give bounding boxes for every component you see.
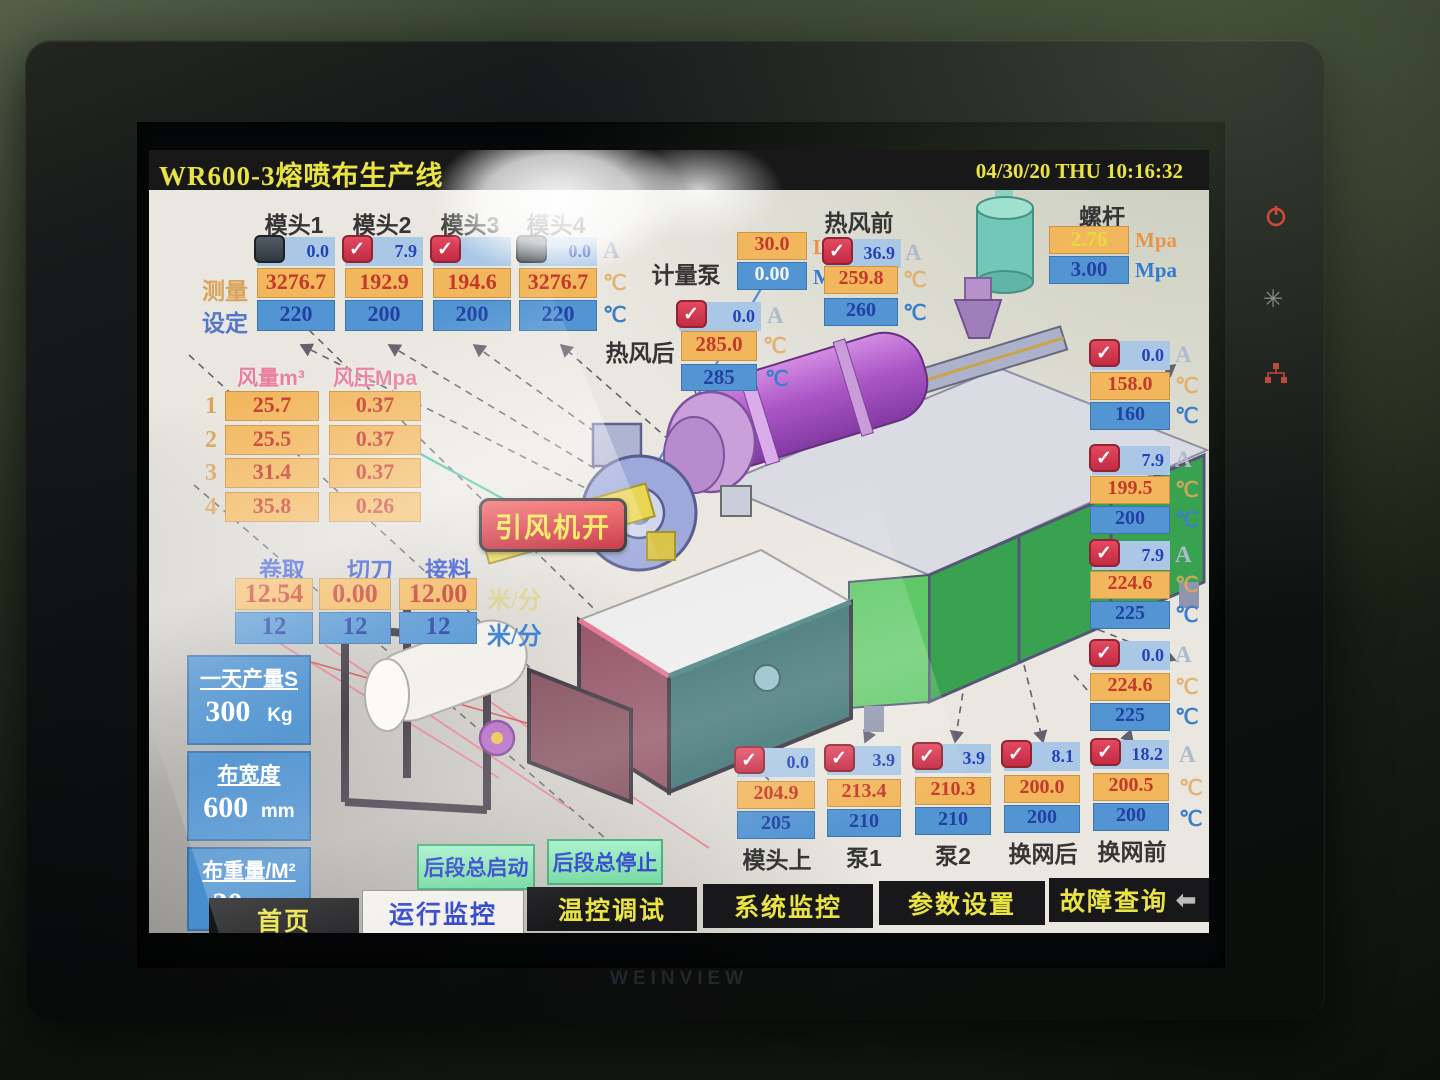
zone2-amp: 7.9 bbox=[1142, 450, 1165, 471]
hmi-content: WR600-3熔喷布生产线 04/30/20 THU 10:16:32 模头1 … bbox=[149, 150, 1209, 933]
zone1-unit-set: ℃ bbox=[1175, 404, 1199, 429]
zone4-unit-meas: ℃ bbox=[1175, 675, 1199, 700]
hot-air-front-amp-strip: 36.9 bbox=[825, 239, 901, 268]
diehead4-measured: 3276.7 bbox=[519, 268, 597, 298]
photo-background: ✳ WEINVIEW bbox=[0, 0, 1440, 1080]
hot-air-rear-unit-meas: ℃ bbox=[763, 334, 787, 359]
screen-changer-front-checkbox[interactable] bbox=[1090, 738, 1121, 766]
pump-pressure-value: 0.00 bbox=[737, 262, 807, 290]
daily-output-title: 一天产量S bbox=[189, 663, 309, 693]
diehead2-checkbox[interactable] bbox=[342, 235, 373, 263]
diehead2-amp-strip: 7.9 bbox=[345, 237, 423, 266]
pump1-measured: 213.4 bbox=[827, 779, 901, 807]
rear-start-button[interactable]: 后段总启动 bbox=[417, 844, 535, 890]
zone2-setpoint[interactable]: 200 bbox=[1090, 506, 1170, 534]
screen-changer-rear-amp-strip: 8.1 bbox=[1004, 742, 1080, 771]
zone4-unit-amp: A bbox=[1175, 642, 1192, 668]
hot-air-front-setpoint[interactable]: 260 bbox=[824, 298, 898, 326]
zone3-checkbox[interactable] bbox=[1089, 539, 1120, 567]
zone2-unit-amp: A bbox=[1175, 447, 1192, 473]
screen-changer-rear-checkbox[interactable] bbox=[1001, 740, 1032, 768]
hot-air-rear-setpoint[interactable]: 285 bbox=[681, 364, 757, 391]
network-icon bbox=[1263, 362, 1289, 391]
daily-output-value: 300 bbox=[205, 695, 250, 729]
diehead3-setpoint[interactable]: 200 bbox=[433, 300, 511, 331]
diehead-top-measured: 204.9 bbox=[737, 781, 815, 809]
screen-changer-front-amp: 18.2 bbox=[1132, 744, 1164, 765]
hot-air-front-checkbox[interactable] bbox=[822, 237, 853, 265]
fan-table-col-volume: 风量m³ bbox=[223, 362, 319, 392]
zone4-setpoint[interactable]: 225 bbox=[1090, 703, 1170, 731]
hot-air-front-amp: 36.9 bbox=[864, 243, 896, 264]
pump1-amp: 3.9 bbox=[873, 750, 896, 771]
diehead-top-setpoint[interactable]: 205 bbox=[737, 811, 815, 839]
bottom-unit-amp: A bbox=[1179, 742, 1196, 768]
hot-air-front-measured: 259.8 bbox=[824, 266, 898, 294]
hot-air-rear-checkbox[interactable] bbox=[676, 300, 707, 328]
tab-temp-debug[interactable]: 温控调试 bbox=[527, 887, 697, 931]
hmi-monitor-bezel: ✳ WEINVIEW bbox=[25, 40, 1325, 1020]
zone4-unit-set: ℃ bbox=[1175, 705, 1199, 730]
zone3-measured: 224.6 bbox=[1090, 571, 1170, 599]
fabric-width-box[interactable]: 布宽度 600 mm bbox=[187, 751, 311, 841]
diehead2-setpoint[interactable]: 200 bbox=[345, 300, 423, 331]
hot-air-rear-amp-strip: 0.0 bbox=[679, 302, 761, 331]
zone1-setpoint[interactable]: 160 bbox=[1090, 402, 1170, 430]
pump2-amp-strip: 3.9 bbox=[915, 744, 991, 773]
receiver-speed-measured: 12.00 bbox=[399, 578, 477, 610]
tab-fault-query[interactable]: 故障查询⬅ bbox=[1049, 878, 1209, 922]
receiver-speed-setpoint[interactable]: 12 bbox=[399, 612, 477, 644]
winding-speed-measured: 12.54 bbox=[235, 578, 313, 610]
zone3-unit-set: ℃ bbox=[1175, 603, 1199, 628]
bottom-unit-set: ℃ bbox=[1179, 807, 1203, 832]
hot-air-front-unit-set: ℃ bbox=[903, 301, 927, 326]
hot-air-front-unit-meas: ℃ bbox=[903, 268, 927, 293]
cutter-speed-measured: 0.00 bbox=[319, 578, 391, 610]
diehead4-setpoint[interactable]: 220 bbox=[519, 300, 597, 331]
diehead3-measured: 194.6 bbox=[433, 268, 511, 298]
hot-air-rear-label: 热风后 bbox=[601, 334, 679, 368]
fabric-weight-title: 布重量/M² bbox=[189, 855, 309, 885]
metering-pump-label: 计量泵 bbox=[646, 256, 726, 290]
zone2-amp-strip: 7.9 bbox=[1092, 446, 1170, 475]
screen-changer-front-amp-strip: 18.2 bbox=[1093, 740, 1169, 769]
screen-changer-rear-label: 换网后 bbox=[996, 835, 1090, 869]
induced-fan-on-button[interactable]: 引风机开 bbox=[479, 498, 627, 552]
diehead-top-amp: 0.0 bbox=[787, 752, 810, 773]
pump2-amp: 3.9 bbox=[963, 748, 986, 769]
zone3-unit-meas: ℃ bbox=[1175, 573, 1199, 598]
zone2-unit-meas: ℃ bbox=[1175, 478, 1199, 503]
pump2-checkbox[interactable] bbox=[912, 742, 943, 770]
daily-output-box[interactable]: 一天产量S 300 Kg bbox=[187, 655, 311, 745]
screen-changer-front-measured: 200.5 bbox=[1093, 773, 1169, 801]
hot-air-rear-amp: 0.0 bbox=[733, 306, 756, 327]
diehead-top-checkbox[interactable] bbox=[734, 746, 765, 774]
hot-air-rear-unit-amp: A bbox=[767, 303, 784, 329]
fan-row3-pressure: 0.37 bbox=[329, 458, 421, 488]
tab-run-monitor[interactable]: 运行监控 bbox=[363, 891, 523, 933]
screw-unit-set: Mpa bbox=[1135, 258, 1177, 283]
diehead-unit-amp: A bbox=[603, 238, 620, 264]
zone4-measured: 224.6 bbox=[1090, 673, 1170, 701]
power-icon[interactable] bbox=[1263, 203, 1289, 234]
screw-unit-meas: Mpa bbox=[1135, 228, 1177, 253]
diehead1-checkbox[interactable] bbox=[254, 235, 285, 263]
diehead3-checkbox[interactable] bbox=[430, 235, 461, 263]
daily-output-unit: Kg bbox=[267, 705, 292, 727]
screen-changer-front-setpoint[interactable]: 200 bbox=[1093, 803, 1169, 831]
zone1-amp-strip: 0.0 bbox=[1092, 341, 1170, 370]
cutter-speed-setpoint[interactable]: 12 bbox=[319, 612, 391, 644]
fan-row4-pressure: 0.26 bbox=[329, 492, 421, 522]
zone1-unit-amp: A bbox=[1175, 342, 1192, 368]
tab-param-settings[interactable]: 参数设置 bbox=[879, 881, 1045, 925]
fan-row2-num: 2 bbox=[205, 427, 217, 454]
fan-row1-num: 1 bbox=[205, 393, 217, 420]
fan-row3-volume: 31.4 bbox=[225, 458, 319, 488]
lcd-screen: WR600-3熔喷布生产线 04/30/20 THU 10:16:32 模头1 … bbox=[137, 122, 1225, 968]
rear-stop-button[interactable]: 后段总停止 bbox=[547, 839, 663, 885]
diehead-top-amp-strip: 0.0 bbox=[737, 748, 815, 777]
pump1-amp-strip: 3.9 bbox=[827, 746, 901, 775]
fan-row2-pressure: 0.37 bbox=[329, 425, 421, 455]
screen-changer-front-label: 换网前 bbox=[1085, 833, 1179, 867]
tab-system-monitor[interactable]: 系统监控 bbox=[703, 884, 873, 928]
fan-row1-volume: 25.7 bbox=[225, 391, 319, 421]
bottom-unit-meas: ℃ bbox=[1179, 776, 1203, 801]
diehead-unit-degc-set: ℃ bbox=[603, 303, 627, 328]
diehead2-amp: 7.9 bbox=[395, 241, 418, 262]
back-arrow-icon: ⬅ bbox=[1176, 886, 1198, 915]
monitor-logo: WEINVIEW bbox=[610, 968, 748, 990]
pump-flow-value: 30.0 bbox=[737, 232, 807, 260]
screen-changer-rear-measured: 200.0 bbox=[1004, 775, 1080, 803]
hot-air-front-label: 热风前 bbox=[819, 204, 899, 238]
screw-measured: 2.76 bbox=[1049, 226, 1129, 254]
pump2-setpoint[interactable]: 210 bbox=[915, 807, 991, 835]
pump1-setpoint[interactable]: 210 bbox=[827, 809, 901, 837]
fan-row3-num: 3 bbox=[205, 460, 217, 487]
zone3-setpoint[interactable]: 225 bbox=[1090, 601, 1170, 629]
fan-table-col-pressure: 风压Mpa bbox=[327, 362, 423, 392]
fan-row1-pressure: 0.37 bbox=[329, 391, 421, 421]
pump2-measured: 210.3 bbox=[915, 777, 991, 805]
fabric-width-value: 600 bbox=[203, 791, 248, 825]
fan-row2-volume: 25.5 bbox=[225, 425, 319, 455]
fabric-width-title: 布宽度 bbox=[189, 759, 309, 789]
brightness-icon[interactable]: ✳ bbox=[1263, 285, 1283, 314]
zone4-amp-strip: 0.0 bbox=[1092, 641, 1170, 670]
diehead3-amp-strip bbox=[433, 237, 511, 266]
zone3-amp: 7.9 bbox=[1142, 545, 1165, 566]
diehead2-measured: 192.9 bbox=[345, 268, 423, 298]
hot-air-front-unit-amp: A bbox=[905, 240, 922, 266]
diehead4-checkbox[interactable] bbox=[516, 235, 547, 263]
measure-row-label: 测量 bbox=[197, 272, 253, 306]
diehead1-amp: 0.0 bbox=[307, 241, 330, 262]
zone1-unit-meas: ℃ bbox=[1175, 374, 1199, 399]
diehead-unit-degc-meas: ℃ bbox=[603, 271, 627, 296]
pump1-label: 泵1 bbox=[825, 839, 903, 873]
fabric-width-unit: mm bbox=[261, 801, 295, 823]
zone2-unit-set: ℃ bbox=[1175, 508, 1199, 533]
page-title: WR600-3熔喷布生产线 bbox=[159, 154, 444, 193]
fan-row4-num: 4 bbox=[205, 494, 217, 521]
zone4-checkbox[interactable] bbox=[1089, 639, 1120, 667]
diehead1-setpoint[interactable]: 220 bbox=[257, 300, 335, 331]
screen-changer-rear-amp: 8.1 bbox=[1052, 746, 1075, 767]
zone3-unit-amp: A bbox=[1175, 542, 1192, 568]
zone1-measured: 158.0 bbox=[1090, 372, 1170, 400]
diehead4-amp-strip: 0.0 bbox=[519, 237, 597, 266]
title-bar: WR600-3熔喷布生产线 04/30/20 THU 10:16:32 bbox=[149, 150, 1209, 190]
hot-air-rear-measured: 285.0 bbox=[681, 331, 757, 361]
zone1-amp: 0.0 bbox=[1142, 345, 1165, 366]
hot-air-rear-unit-set: ℃ bbox=[765, 367, 789, 392]
tab-home[interactable]: 首页 bbox=[209, 898, 359, 933]
winding-speed-setpoint[interactable]: 12 bbox=[235, 612, 313, 644]
screen-changer-rear-setpoint[interactable]: 200 bbox=[1004, 805, 1080, 833]
diehead-top-label: 模头上 bbox=[731, 841, 823, 875]
zone2-checkbox[interactable] bbox=[1089, 444, 1120, 472]
zone4-amp: 0.0 bbox=[1142, 645, 1165, 666]
zone3-amp-strip: 7.9 bbox=[1092, 541, 1170, 570]
datetime: 04/30/20 THU 10:16:32 bbox=[976, 159, 1183, 184]
zone2-measured: 199.5 bbox=[1090, 476, 1170, 504]
pump2-label: 泵2 bbox=[913, 837, 993, 871]
zone1-checkbox[interactable] bbox=[1089, 339, 1120, 367]
speed-unit-set: 米/分 bbox=[487, 616, 542, 651]
pump1-checkbox[interactable] bbox=[824, 744, 855, 772]
fan-row4-volume: 35.8 bbox=[225, 492, 319, 522]
screw-setpoint[interactable]: 3.00 bbox=[1049, 256, 1129, 284]
set-row-label: 设定 bbox=[197, 304, 253, 338]
diehead1-amp-strip: 0.0 bbox=[257, 237, 335, 266]
diehead4-amp: 0.0 bbox=[569, 241, 592, 262]
speed-unit-measured: 米/分 bbox=[487, 580, 542, 615]
diehead1-measured: 3276.7 bbox=[257, 268, 335, 298]
